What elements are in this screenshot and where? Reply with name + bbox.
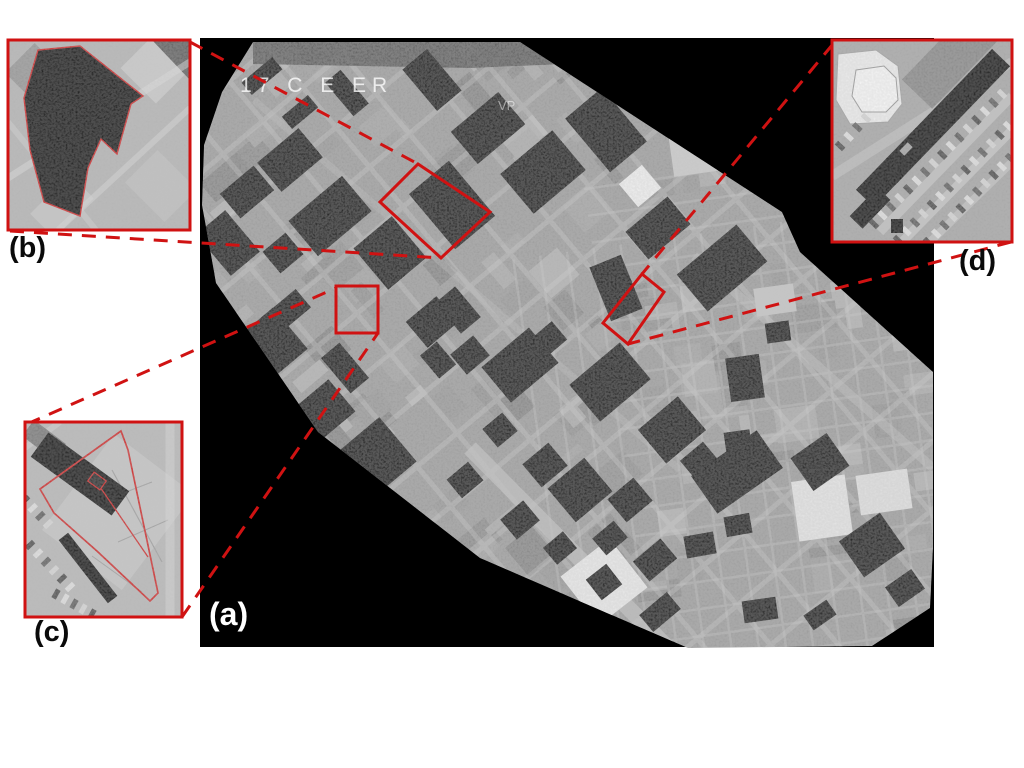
panel-label-d: (d): [959, 247, 996, 276]
inset-c: [20, 420, 194, 620]
inset-b: [5, 29, 197, 238]
panel-label-c: (c): [34, 618, 69, 647]
figure-canvas: 17 C E ERVP: [0, 0, 1024, 768]
inset-d: [832, 11, 1015, 247]
panel-label-b: (b): [9, 234, 46, 263]
photo-overlay-text: 17 C E ER: [240, 74, 393, 97]
panel-label-a: (a): [209, 598, 248, 630]
photo-overlay-text-2: VP: [498, 98, 515, 113]
figure-page: 17 C E ERVP (a) (b) (c) (d): [0, 0, 1024, 768]
